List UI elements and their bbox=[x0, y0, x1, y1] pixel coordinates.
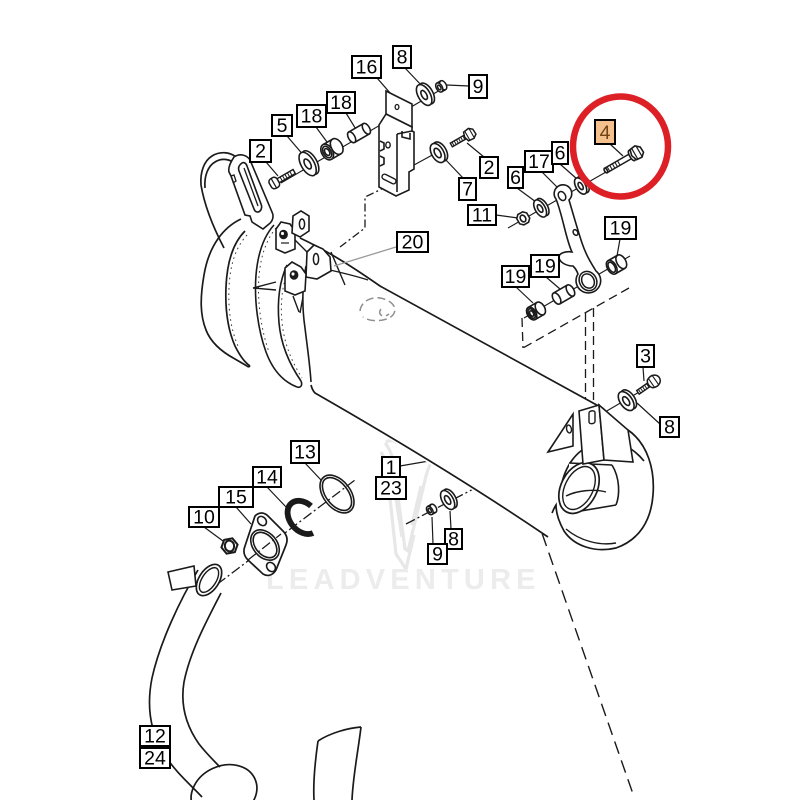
svg-text:8: 8 bbox=[448, 529, 459, 551]
svg-text:2: 2 bbox=[255, 141, 266, 163]
svg-text:18: 18 bbox=[330, 92, 352, 114]
svg-text:19: 19 bbox=[534, 256, 556, 278]
svg-text:3: 3 bbox=[640, 346, 651, 368]
svg-text:17: 17 bbox=[528, 151, 550, 173]
svg-text:16: 16 bbox=[356, 57, 378, 79]
svg-text:19: 19 bbox=[505, 266, 527, 288]
svg-text:9: 9 bbox=[432, 544, 443, 566]
svg-text:6: 6 bbox=[510, 167, 521, 189]
svg-text:12: 12 bbox=[144, 726, 166, 748]
svg-text:20: 20 bbox=[402, 232, 424, 254]
svg-text:19: 19 bbox=[610, 218, 632, 240]
svg-text:8: 8 bbox=[664, 417, 675, 439]
svg-text:14: 14 bbox=[256, 467, 278, 489]
svg-text:13: 13 bbox=[294, 442, 316, 464]
svg-text:2: 2 bbox=[484, 157, 495, 179]
svg-text:5: 5 bbox=[277, 115, 288, 137]
svg-text:18: 18 bbox=[301, 106, 323, 128]
svg-text:23: 23 bbox=[380, 478, 402, 500]
svg-text:LEADVENTURE: LEADVENTURE bbox=[266, 564, 541, 596]
svg-text:9: 9 bbox=[473, 76, 484, 98]
svg-text:11: 11 bbox=[472, 205, 492, 227]
svg-text:7: 7 bbox=[462, 179, 473, 201]
svg-text:8: 8 bbox=[397, 47, 408, 69]
svg-text:24: 24 bbox=[144, 748, 166, 770]
svg-text:4: 4 bbox=[600, 122, 611, 144]
svg-text:1: 1 bbox=[386, 457, 397, 479]
svg-text:6: 6 bbox=[555, 143, 566, 165]
svg-text:10: 10 bbox=[193, 507, 215, 529]
svg-text:15: 15 bbox=[225, 487, 247, 509]
